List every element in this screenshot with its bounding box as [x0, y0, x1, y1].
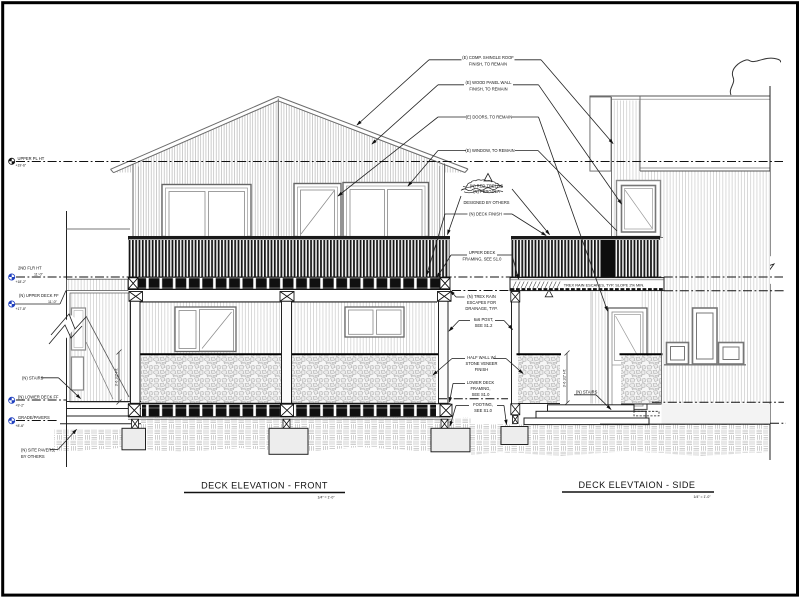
svg-text:3'-6 1/2" HT.: 3'-6 1/2" HT.	[563, 369, 567, 387]
svg-text:+8'-6": +8'-6"	[16, 424, 26, 428]
svg-text:(E) COMP. SHINGLE ROOF: (E) COMP. SHINGLE ROOF	[462, 55, 514, 60]
svg-text:+9'-2": +9'-2"	[16, 404, 26, 408]
svg-text:+19'-6": +19'-6"	[16, 164, 27, 168]
svg-text:(N) STAIRS: (N) STAIRS	[576, 390, 598, 395]
svg-text:GRADE/PAVERS: GRADE/PAVERS	[18, 415, 50, 420]
svg-text:2ND FLR HT: 2ND FLR HT	[18, 266, 42, 271]
svg-text:1/4" = 1'-0": 1/4" = 1'-0"	[693, 495, 711, 499]
svg-text:SEE S1.2: SEE S1.2	[475, 323, 493, 328]
svg-text:(N) SITE PAVERS,: (N) SITE PAVERS,	[21, 448, 55, 453]
svg-text:SEE S1.0: SEE S1.0	[474, 408, 492, 413]
svg-text:FRAMING,: FRAMING,	[470, 386, 490, 391]
svg-text:(E) DOORS, TO REMAIN: (E) DOORS, TO REMAIN	[466, 115, 513, 120]
svg-text:3'-6 1/2" HT.: 3'-6 1/2" HT.	[115, 368, 119, 386]
svg-text:STONE VENEER: STONE VENEER	[465, 361, 497, 366]
svg-text:(N) LOWER DECK FF: (N) LOWER DECK FF	[18, 395, 59, 400]
svg-text:FINISH, TO REMAIN: FINISH, TO REMAIN	[469, 62, 507, 67]
svg-text:11'-0": 11'-0"	[48, 300, 58, 304]
svg-text:(E) WOOD PANEL WALL: (E) WOOD PANEL WALL	[465, 80, 512, 85]
svg-text:(N) UPPER DECK FF: (N) UPPER DECK FF	[19, 293, 59, 298]
svg-text:(E) WINDOW, TO REMAIN: (E) WINDOW, TO REMAIN	[465, 148, 514, 153]
svg-text:+18'-2": +18'-2"	[16, 280, 27, 284]
svg-text:11'-0": 11'-0"	[34, 273, 44, 277]
svg-text:DECK ELEVTAION - SIDE: DECK ELEVTAION - SIDE	[579, 480, 696, 490]
svg-text:(N) DECK FINISH: (N) DECK FINISH	[469, 212, 502, 217]
svg-text:LOWER DECK: LOWER DECK	[467, 380, 495, 385]
svg-text:UPPER DECK: UPPER DECK	[469, 250, 496, 255]
svg-text:FRAMING, SEE S1.0: FRAMING, SEE S1.0	[463, 257, 503, 262]
svg-text:FOOTING,: FOOTING,	[473, 402, 493, 407]
svg-text:FINISH: FINISH	[475, 367, 488, 372]
svg-text:ESCAPES FOR: ESCAPES FOR	[467, 300, 496, 305]
svg-text:DECK ELEVATION - FRONT: DECK ELEVATION - FRONT	[201, 481, 328, 491]
svg-text:(N) TREX RAIN: (N) TREX RAIN	[467, 294, 496, 299]
svg-text:(N) STAIRS: (N) STAIRS	[22, 376, 44, 381]
svg-text:BY OTHERS: BY OTHERS	[21, 454, 45, 459]
svg-text:6x6 POST,: 6x6 POST,	[474, 317, 494, 322]
svg-text:DESIGNED BY OTHERS: DESIGNED BY OTHERS	[463, 200, 509, 205]
svg-text:1/4" = 1'-0": 1/4" = 1'-0"	[317, 496, 335, 500]
svg-text:UPPER PL HT: UPPER PL HT	[18, 156, 45, 161]
svg-text:FINISH, TO REMAIN: FINISH, TO REMAIN	[469, 87, 507, 92]
svg-text:TREX RAIN ESCAPES, TYP. SLOPE: TREX RAIN ESCAPES, TYP. SLOPE 2% MIN.	[564, 283, 645, 288]
svg-text:HALF WALL W/: HALF WALL W/	[467, 355, 496, 360]
svg-text:+17'-8": +17'-8"	[16, 307, 27, 311]
svg-text:SEE S1.0: SEE S1.0	[472, 392, 490, 397]
svg-text:DRAINAGE, TYP.: DRAINAGE, TYP.	[465, 306, 497, 311]
